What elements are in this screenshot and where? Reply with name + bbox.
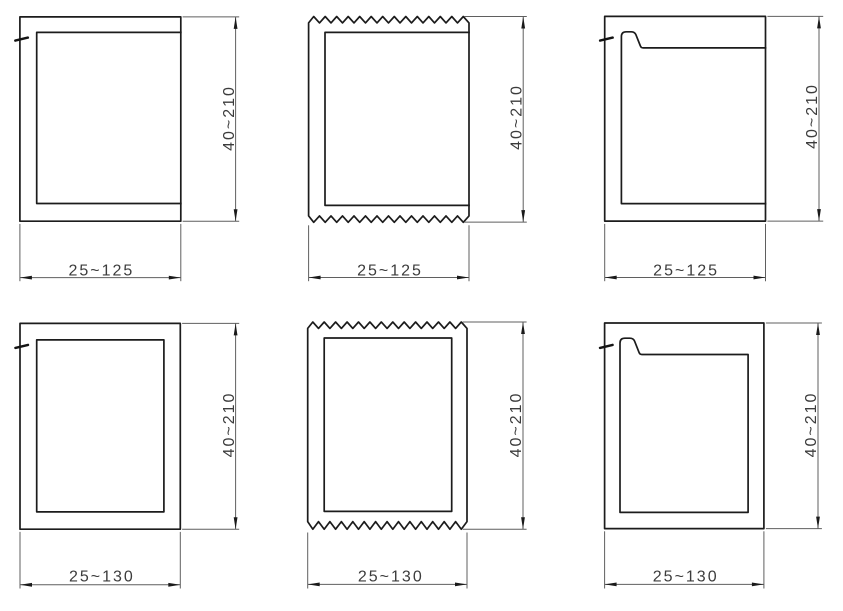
svg-text:40~210: 40~210 [508,84,525,150]
svg-text:40~210: 40~210 [508,392,525,458]
svg-text:25~130: 25~130 [653,569,719,586]
svg-text:40~210: 40~210 [804,83,821,149]
svg-text:40~210: 40~210 [803,392,820,458]
svg-text:40~210: 40~210 [221,85,238,151]
svg-text:25~125: 25~125 [357,262,423,279]
svg-text:40~210: 40~210 [221,392,238,458]
svg-text:25~125: 25~125 [653,262,719,279]
svg-text:25~130: 25~130 [358,569,424,586]
svg-text:25~130: 25~130 [69,569,135,586]
svg-text:25~125: 25~125 [68,262,134,279]
